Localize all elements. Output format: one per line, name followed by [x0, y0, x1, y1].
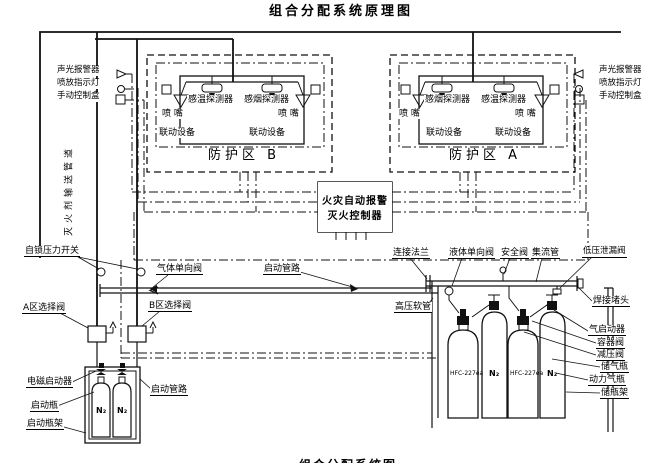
label-manual-control-box-left: 手动控制盒 [56, 92, 101, 102]
label-nozzle-b-left: 喷 嘴 [161, 109, 184, 119]
label-solenoid-actuator: 电磁启动器 [26, 377, 73, 388]
label-cylinder-rack: 储瓶架 [600, 388, 629, 399]
label-linkage-b-left: 联动设备 [158, 128, 196, 138]
label-sound-light-alarm-left: 声光报警器 [56, 66, 101, 76]
label-start-pipeline: 启动管路 [263, 264, 301, 275]
label-storage-cylinder: 储气瓶 [600, 362, 629, 373]
label-welded-plug: 焊接堵头 [592, 296, 630, 307]
controller-line1: 火灾自动报警 [322, 192, 388, 207]
label-smoke-detector-b: 感烟探测器 [243, 95, 290, 105]
start-pipeline-lines [100, 272, 438, 428]
label-discharge-indicator-left: 喷放指示灯 [56, 79, 101, 89]
label-smoke-detector-a: 感烟探测器 [424, 95, 471, 105]
label-liquid-check-valve: 液体单向阀 [448, 248, 495, 259]
label-n2-pilot-1: N₂ [95, 406, 107, 415]
label-connecting-flange: 连接法兰 [392, 248, 430, 259]
label-low-pressure-leak-valve: 低压泄漏阀 [582, 247, 627, 258]
solenoid-actuators [96, 363, 127, 375]
label-pressure-switch: 自锁压力开关 [24, 246, 80, 257]
controller-line2: 灭火控制器 [328, 207, 383, 222]
label-nozzle-a-right: 喷 嘴 [514, 109, 537, 119]
zone-a-title: 防护区 A [448, 149, 522, 164]
label-linkage-b-right: 联动设备 [248, 128, 286, 138]
manifold-lines [426, 267, 613, 432]
label-nozzle-a-left: 喷 嘴 [398, 109, 421, 119]
label-pressure-reducing-valve: 减压阀 [596, 350, 625, 361]
label-heat-detector-a: 感温探测器 [480, 95, 527, 105]
label-manual-control-box-right: 手动控制盒 [598, 92, 643, 102]
label-discharge-indicator-right: 喷放指示灯 [598, 79, 643, 89]
label-sound-light-alarm-right: 声光报警器 [598, 66, 643, 76]
selector-valves [60, 311, 160, 367]
label-supply-pipe: 灭火剂输送管道 [62, 141, 75, 241]
label-high-pressure-hose: 高压软管 [394, 302, 432, 313]
label-linkage-a-right: 联动设备 [494, 128, 532, 138]
label-container-valve: 容器阀 [596, 338, 625, 349]
schematic-diagram: 组合分配系统原理图 声光报警器 喷放指示灯 手动控制盒 声光报警器 喷放指示灯 … [0, 0, 658, 463]
label-safety-valve: 安全阀 [500, 248, 529, 259]
label-linkage-a-left: 联动设备 [425, 128, 463, 138]
alarm-symbols-left [116, 70, 126, 104]
label-nozzle-b-right: 喷 嘴 [277, 109, 300, 119]
label-n2-cylinder-1: N₂ [488, 369, 500, 378]
label-start-pipeline-2: 启动管路 [150, 385, 188, 396]
label-power-cylinder: 动力气瓶 [588, 375, 626, 386]
label-zone-a-selector-valve: A区选择阀 [22, 303, 66, 314]
label-hfc-cylinder-1: HFC-227ea [449, 371, 484, 378]
label-gas-actuator: 气启动器 [588, 325, 626, 336]
label-n2-pilot-2: N₂ [116, 406, 128, 415]
alarm-symbols-right [574, 70, 584, 104]
label-zone-b-selector-valve: B区选择阀 [148, 301, 192, 312]
label-gas-check-valve: 气体单向阀 [156, 264, 203, 275]
label-manifold: 集流管 [531, 248, 560, 259]
diagram-title: 组合分配系统原理图 [200, 5, 482, 20]
bottom-caption-clipped: 组合分配系统图 [283, 456, 413, 463]
label-pilot-cylinder: 启动瓶 [30, 401, 59, 412]
label-hfc-cylinder-2: HFC-227ea [509, 371, 544, 378]
label-heat-detector-b: 感温探测器 [187, 95, 234, 105]
label-pilot-cylinder-rack: 启动瓶架 [26, 419, 64, 430]
fire-alarm-controller: 火灾自动报警 灭火控制器 [318, 182, 392, 232]
zone-b-title: 防护区 B [207, 149, 281, 164]
label-n2-cylinder-2: N₂ [546, 369, 558, 378]
